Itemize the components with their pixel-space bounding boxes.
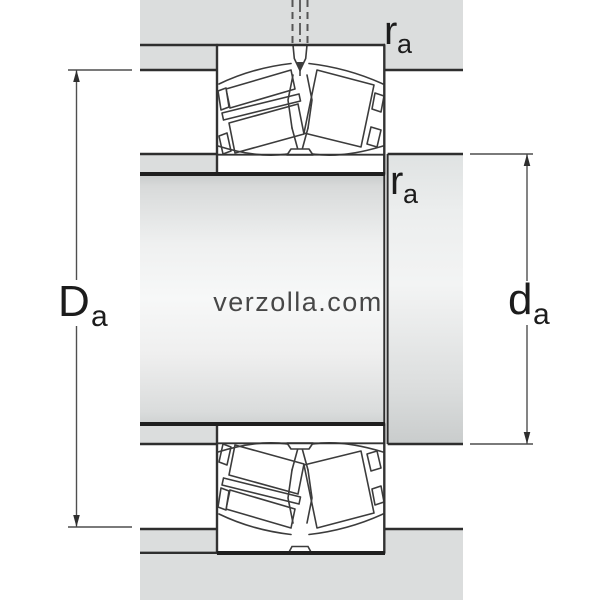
housing-shoulder-top-left — [140, 45, 217, 70]
label-da-main: d — [508, 275, 532, 324]
watermark-text: verzolla.com — [213, 287, 383, 317]
label-da-sub: a — [533, 298, 550, 331]
bearing-cross-section-svg: verzolla.com — [0, 0, 600, 600]
arrow-Da-up — [73, 70, 80, 82]
housing-shoulder-bottom-right — [385, 529, 463, 553]
label-Da-main: D — [58, 277, 90, 326]
label-ra-top-sub: a — [397, 29, 413, 59]
label-ra-mid-sub: a — [403, 179, 419, 209]
arrow-da-up — [524, 154, 531, 166]
label-Da-sub: a — [91, 300, 108, 333]
arrow-da-down — [524, 432, 531, 444]
housing-top-band — [140, 0, 463, 45]
shaft-shoulder-top-left — [140, 154, 217, 174]
label-ra-top-main: r — [384, 9, 397, 53]
housing-shoulder-bottom-left — [140, 529, 217, 553]
shaft-shoulder-bottom-left — [140, 424, 217, 444]
arrow-Da-down — [73, 515, 80, 527]
label-ra-mid-main: r — [390, 159, 403, 203]
bearing-abutment-diagram: verzolla.com — [0, 0, 600, 600]
housing-bottom-band — [140, 553, 463, 600]
